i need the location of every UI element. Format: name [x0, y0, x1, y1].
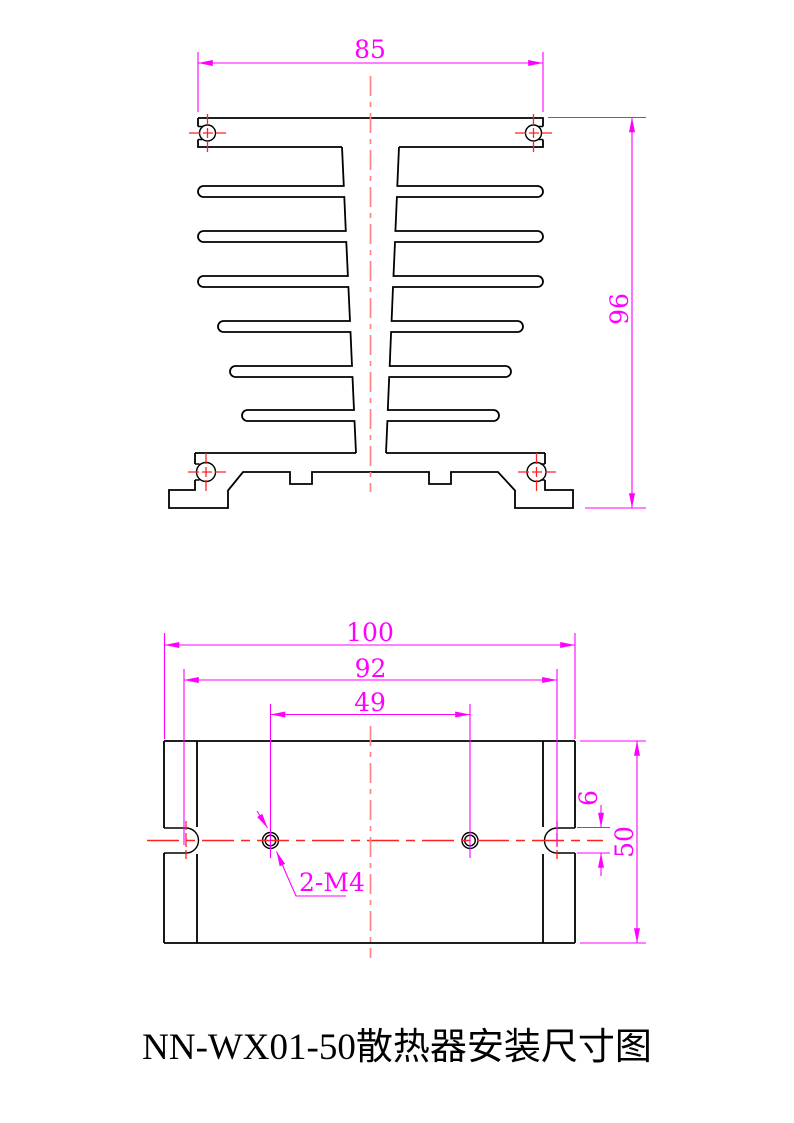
cad-drawing-canvas: 85 96 — [0, 0, 794, 1123]
base-hole-right-crosshair-icon — [518, 453, 556, 491]
dim-100-value: 100 — [346, 618, 394, 647]
dim-96: 96 — [548, 118, 646, 509]
base-hole-left-crosshair-icon — [188, 453, 226, 491]
dim-100-extension-lines — [165, 633, 576, 739]
dim-85-value: 85 — [354, 35, 386, 64]
fins-right-outline — [386, 147, 543, 453]
fins-left-outline — [198, 147, 356, 453]
callout-leader-upper — [257, 811, 268, 828]
dim-96-value: 96 — [605, 293, 634, 325]
dim-92-value: 92 — [355, 654, 387, 683]
dim-85: 85 — [198, 35, 543, 112]
dim-50-value: 50 — [610, 826, 639, 858]
dim-49-value: 49 — [354, 688, 386, 717]
callout-2-m4-label: 2-M4 — [299, 868, 365, 897]
heatsink-bottom-view: 100 92 49 50 6 2-M — [147, 618, 646, 958]
callout-2-m4: 2-M4 — [257, 811, 365, 897]
heatsink-front-view: 85 96 — [169, 35, 646, 508]
drawing-sheet: 85 96 — [0, 0, 794, 1123]
dim-6: 6 — [574, 790, 610, 876]
plan-outline — [164, 741, 575, 943]
dim-6-value: 6 — [574, 790, 603, 806]
drawing-title: NN-WX01-50散热器安装尺寸图 — [142, 1026, 652, 1068]
dim-50: 50 — [580, 741, 646, 943]
